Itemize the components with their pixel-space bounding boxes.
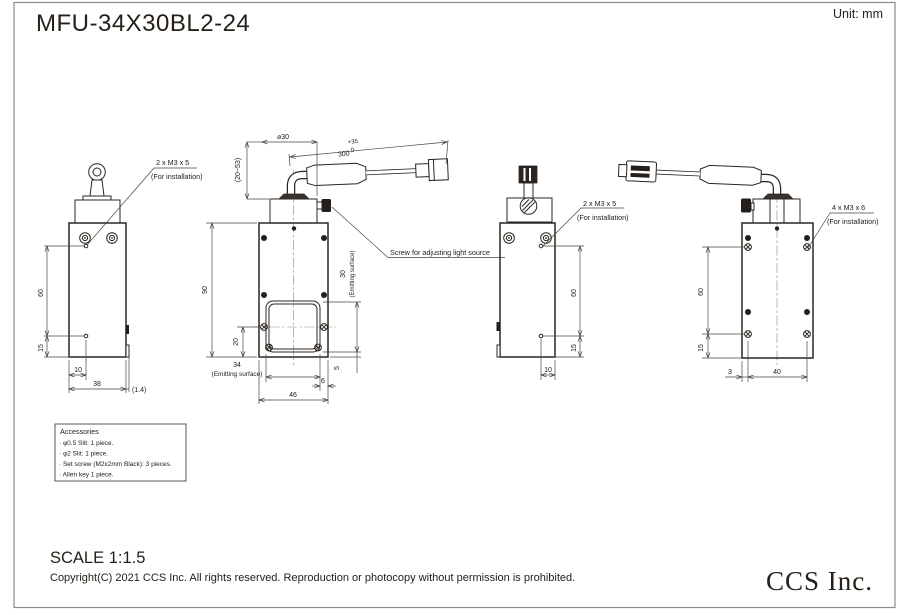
rear-install-label: 2 x M3 x 5 bbox=[583, 199, 616, 208]
accessory-item: · Allen key 1 piece. bbox=[59, 472, 114, 479]
dim-side-6: 6 bbox=[321, 378, 325, 385]
drawing-title: MFU-34X30BL2-24 bbox=[36, 10, 250, 37]
front-install-label: 2 x M3 x 5 bbox=[156, 158, 189, 167]
fiber-cable-back bbox=[618, 160, 761, 186]
dim-rear-10: 10 bbox=[544, 367, 552, 374]
dim-back-40: 40 bbox=[773, 369, 781, 376]
technical-drawing-page: MFU-34X30BL2-24 Unit: mm 60 15 10 38 bbox=[0, 0, 900, 615]
dim-front-1-4: (1.4) bbox=[132, 387, 146, 394]
unit-label: Unit: mm bbox=[833, 7, 883, 21]
dim-side-34: 34 bbox=[233, 362, 241, 369]
dim-rear-60: 60 bbox=[571, 289, 578, 297]
side-setscrew-bump-rear bbox=[497, 322, 501, 331]
accessory-item: · φ0.5 Slit: 1 piece. bbox=[59, 440, 114, 447]
dim-side-30-note: (Emitting surface) bbox=[350, 250, 356, 297]
rear-view-dimension-lines bbox=[541, 208, 624, 380]
cable-connector bbox=[428, 159, 448, 181]
dim-side-46: 46 bbox=[289, 392, 297, 399]
rear-view: 60 15 10 2 x M3 x 5 (For installation) bbox=[497, 166, 629, 380]
dim-front-15: 15 bbox=[38, 344, 45, 352]
scale-label: SCALE 1:1.5 bbox=[50, 549, 145, 567]
dim-rear-15: 15 bbox=[571, 344, 578, 352]
company-logo: CCS Inc. bbox=[766, 566, 873, 596]
cable-connector-neck bbox=[416, 164, 430, 178]
dim-back-3: 3 bbox=[728, 369, 732, 376]
dim-front-60: 60 bbox=[38, 289, 45, 297]
dim-back-15: 15 bbox=[698, 344, 705, 352]
fiber-cable bbox=[307, 159, 449, 186]
dim-side-34-note: (Emitting surface) bbox=[212, 371, 263, 378]
slit-plate-edge bbox=[126, 345, 129, 357]
dim-side-dia30: ⌀30 bbox=[277, 134, 289, 141]
dim-back-60: 60 bbox=[698, 288, 705, 296]
dim-cable-tol-plus: +35 bbox=[348, 139, 359, 146]
adjust-screw-label: Screw for adjusting light source bbox=[390, 248, 490, 257]
drawing-canvas: MFU-34X30BL2-24 Unit: mm 60 15 10 38 bbox=[0, 0, 900, 615]
dim-side-30: 30 bbox=[340, 270, 347, 278]
side-view: ⌀30 300 +35 0 (20~53) 90 20 34 (Emitting… bbox=[202, 134, 505, 404]
dim-side-range: (20~53) bbox=[235, 158, 242, 182]
emitting-window bbox=[266, 301, 320, 352]
back-install-sublabel: (For installation) bbox=[827, 217, 879, 226]
slit-plate-edge-rear bbox=[497, 345, 500, 357]
back-view: 60 15 3 40 4 x M3 x 6 (For installation) bbox=[618, 160, 878, 382]
accessory-item: · φ2 Slit: 1 piece. bbox=[59, 451, 108, 458]
dim-front-10: 10 bbox=[74, 367, 82, 374]
dim-front-38: 38 bbox=[93, 381, 101, 388]
dim-cable-300: 300 bbox=[338, 150, 350, 158]
accessory-item: · Set screw (M2x2mm Black): 3 pieces. bbox=[59, 461, 172, 468]
rear-install-sublabel: (For installation) bbox=[577, 213, 629, 222]
accessories-title: Accessories bbox=[60, 427, 99, 436]
front-install-sublabel: (For installation) bbox=[151, 172, 203, 181]
dim-side-20: 20 bbox=[233, 338, 240, 346]
adjusting-screw-knob bbox=[322, 199, 332, 212]
back-view-dimension-lines bbox=[702, 213, 874, 382]
page-border bbox=[14, 3, 895, 608]
side-setscrew-bump bbox=[126, 325, 130, 334]
adjusting-screw-knob-back bbox=[741, 199, 751, 213]
back-install-label: 4 x M3 x 6 bbox=[832, 203, 865, 212]
copyright-text: Copyright(C) 2021 CCS Inc. All rights re… bbox=[50, 572, 575, 584]
dim-side-5: 5 bbox=[334, 366, 341, 370]
cable-connector-back bbox=[626, 161, 657, 182]
accessories-box: Accessories · φ0.5 Slit: 1 piece. · φ2 S… bbox=[55, 424, 186, 481]
dim-side-90: 90 bbox=[202, 286, 209, 294]
front-view: 60 15 10 38 (1.4) 2 x M3 x 5 (For instal… bbox=[38, 158, 203, 394]
